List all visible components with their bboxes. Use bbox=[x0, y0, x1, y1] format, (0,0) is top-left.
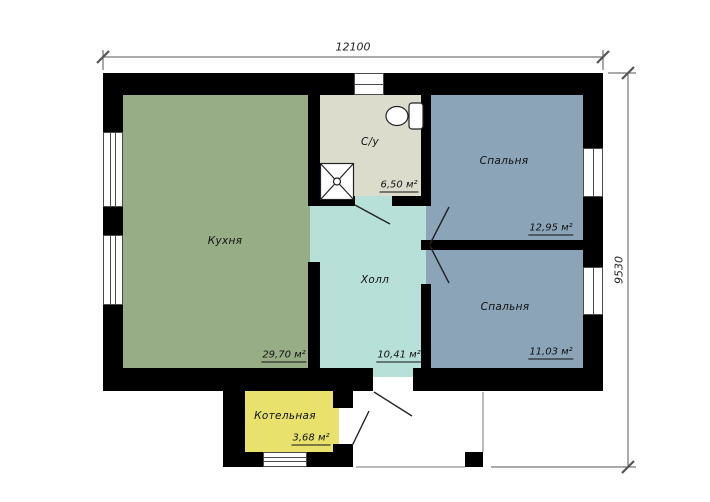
area-hall: 10,41 м² bbox=[376, 350, 421, 363]
window-right-2 bbox=[583, 267, 603, 315]
label-bedroom-1: Спальня bbox=[480, 155, 529, 167]
wall-kitchen-hall bbox=[308, 262, 320, 368]
area-bedroom-2: 11,03 м² bbox=[528, 347, 573, 360]
label-kitchen: Кухня bbox=[208, 235, 243, 247]
label-bathroom: С/у bbox=[361, 136, 379, 148]
window-left-2 bbox=[103, 235, 123, 305]
label-bedroom-2: Спальня bbox=[481, 301, 530, 313]
area-bathroom: 6,50 м² bbox=[380, 180, 419, 193]
door-opening-entrance-threshold bbox=[373, 368, 413, 377]
room-bedroom-1 bbox=[431, 95, 583, 240]
dimension-height-label: 9530 bbox=[613, 256, 626, 284]
wall-between-bedrooms bbox=[421, 240, 583, 250]
label-hall: Холл bbox=[361, 274, 389, 286]
area-bedroom-1: 12,95 м² bbox=[528, 223, 573, 236]
porch-pillar bbox=[465, 452, 483, 467]
wall-exterior-right bbox=[583, 73, 603, 391]
door-opening-boiler-threshold bbox=[333, 408, 339, 444]
door-opening-bathroom bbox=[355, 196, 392, 206]
wall-exterior-bottom bbox=[103, 368, 603, 391]
porch-outline bbox=[356, 392, 483, 467]
room-kitchen bbox=[123, 95, 310, 368]
wall-bathroom-bedroom1 bbox=[421, 95, 431, 206]
door-opening-bedroom1-inner bbox=[426, 206, 431, 240]
door-swing-entrance bbox=[374, 392, 412, 416]
dimension-width-label: 12100 bbox=[336, 41, 371, 54]
wall-exterior-top bbox=[103, 73, 603, 95]
room-hall bbox=[310, 206, 421, 368]
door-swing-boiler bbox=[352, 411, 369, 446]
floor-plan: 12100 9530 Кухня С/у Спальня Спальня Хол… bbox=[0, 0, 710, 502]
window-right-1 bbox=[583, 148, 603, 197]
window-left-1 bbox=[103, 132, 123, 207]
door-opening-bedroom2-inner bbox=[426, 250, 431, 284]
wall-kitchen-bathroom bbox=[308, 95, 320, 206]
area-boiler: 3,68 м² bbox=[292, 433, 331, 446]
area-kitchen: 29,70 м² bbox=[261, 350, 306, 363]
window-boiler bbox=[263, 452, 307, 467]
wall-exterior-left bbox=[103, 73, 123, 391]
label-boiler: Котельная bbox=[254, 410, 316, 422]
window-top bbox=[354, 73, 384, 95]
wall-hall-bedroom2 bbox=[421, 284, 431, 368]
